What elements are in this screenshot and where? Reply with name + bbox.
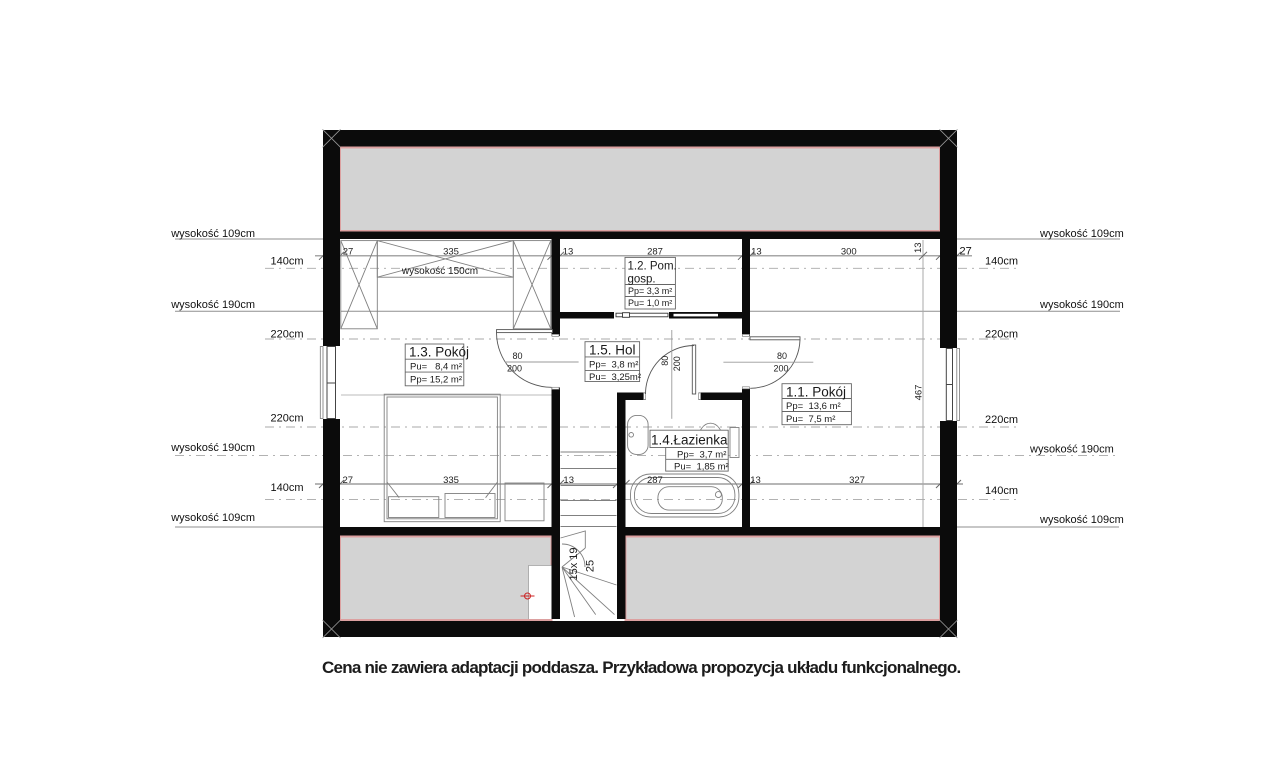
svg-text:15x 19: 15x 19	[568, 547, 580, 580]
svg-text:13: 13	[563, 475, 574, 486]
svg-text:27: 27	[343, 247, 354, 258]
svg-text:wysokość 150cm: wysokość 150cm	[401, 266, 478, 277]
svg-text:25: 25	[585, 560, 597, 572]
svg-text:327: 327	[849, 475, 865, 486]
svg-text:287: 287	[647, 475, 663, 486]
svg-text:wysokość 190cm: wysokość 190cm	[1039, 299, 1124, 311]
svg-text:Pp= 3,7 m²: Pp= 3,7 m²	[677, 450, 726, 461]
svg-text:80: 80	[512, 351, 522, 361]
svg-text:Pp= 3,3 m²: Pp= 3,3 m²	[628, 286, 672, 296]
svg-text:Pu= 1,0 m²: Pu= 1,0 m²	[628, 298, 672, 308]
svg-text:200: 200	[672, 356, 682, 371]
svg-text:1.3. Pokój: 1.3. Pokój	[409, 345, 469, 360]
svg-text:80: 80	[777, 351, 787, 361]
svg-text:13: 13	[750, 475, 761, 486]
svg-text:467: 467	[913, 385, 924, 401]
svg-text:140cm: 140cm	[985, 485, 1018, 497]
svg-text:Pu= 7,5 m²: Pu= 7,5 m²	[786, 414, 835, 425]
svg-text:1.5. Hol: 1.5. Hol	[589, 342, 636, 357]
svg-text:13: 13	[751, 247, 762, 258]
svg-text:335: 335	[443, 247, 459, 258]
svg-text:140cm: 140cm	[270, 256, 303, 268]
svg-text:220cm: 220cm	[270, 329, 303, 341]
svg-text:300: 300	[841, 247, 857, 258]
svg-text:wysokość 190cm: wysokość 190cm	[170, 442, 255, 454]
svg-text:13: 13	[913, 242, 924, 253]
svg-text:wysokość 109cm: wysokość 109cm	[170, 512, 255, 524]
svg-text:287: 287	[647, 247, 663, 258]
svg-text:27: 27	[343, 475, 354, 486]
svg-text:1.2. Pom.: 1.2. Pom.	[628, 261, 677, 273]
svg-text:wysokość 109cm: wysokość 109cm	[1039, 228, 1124, 240]
svg-text:80: 80	[660, 356, 670, 366]
svg-text:wysokość 109cm: wysokość 109cm	[170, 228, 255, 240]
svg-text:wysokość 190cm: wysokość 190cm	[170, 299, 255, 311]
svg-text:140cm: 140cm	[985, 256, 1018, 268]
svg-text:200: 200	[773, 364, 788, 374]
svg-text:Pu= 8,4 m²: Pu= 8,4 m²	[410, 361, 462, 372]
svg-text:27: 27	[960, 246, 972, 258]
svg-text:Pp= 3,8 m²: Pp= 3,8 m²	[589, 360, 638, 371]
svg-text:200: 200	[507, 364, 522, 374]
svg-text:Cena nie zawiera adaptacji pod: Cena nie zawiera adaptacji poddasza. Prz…	[322, 658, 961, 677]
svg-text:220cm: 220cm	[985, 329, 1018, 341]
svg-text:Pp= 15,2 m²: Pp= 15,2 m²	[410, 375, 462, 386]
svg-text:Pu= 1,85 m²: Pu= 1,85 m²	[674, 462, 729, 473]
svg-text:Pu= 3,25m²: Pu= 3,25m²	[589, 372, 641, 383]
svg-text:220cm: 220cm	[270, 413, 303, 425]
svg-text:335: 335	[443, 475, 459, 486]
svg-text:wysokość 109cm: wysokość 109cm	[1039, 514, 1124, 526]
svg-text:wysokość 190cm: wysokość 190cm	[1029, 444, 1114, 456]
svg-text:140cm: 140cm	[270, 482, 303, 494]
svg-text:13: 13	[563, 247, 574, 258]
svg-text:Pp= 13,6 m²: Pp= 13,6 m²	[786, 401, 841, 412]
svg-text:1.1. Pokój: 1.1. Pokój	[786, 385, 846, 400]
svg-text:220cm: 220cm	[985, 414, 1018, 426]
svg-text:1.4.Łazienka: 1.4.Łazienka	[651, 433, 728, 448]
svg-text:gosp.: gosp.	[628, 274, 656, 286]
